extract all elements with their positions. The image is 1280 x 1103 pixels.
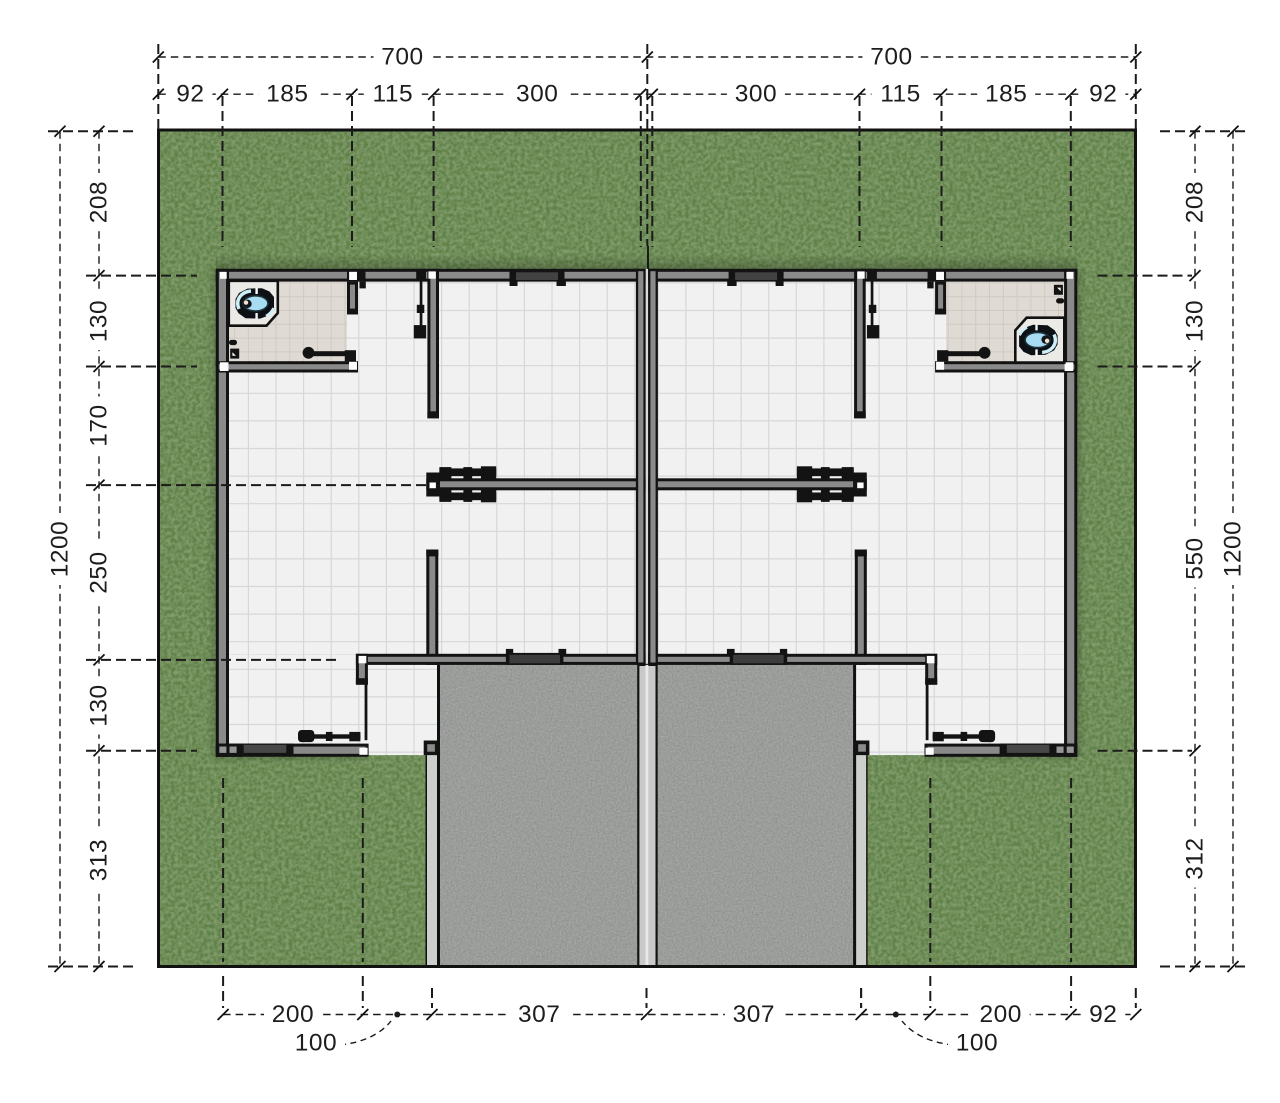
svg-text:130: 130: [86, 684, 113, 726]
svg-text:92: 92: [1089, 81, 1117, 108]
svg-text:550: 550: [1182, 537, 1209, 579]
svg-text:130: 130: [86, 300, 113, 342]
svg-text:185: 185: [985, 81, 1027, 108]
svg-text:700: 700: [381, 44, 423, 71]
svg-text:700: 700: [870, 44, 912, 71]
svg-text:200: 200: [980, 1001, 1022, 1028]
svg-text:208: 208: [1182, 181, 1209, 223]
svg-text:208: 208: [86, 181, 113, 223]
svg-text:300: 300: [735, 81, 777, 108]
svg-text:307: 307: [518, 1001, 560, 1028]
svg-text:300: 300: [516, 81, 558, 108]
svg-text:100: 100: [956, 1030, 998, 1057]
svg-text:307: 307: [733, 1001, 775, 1028]
svg-text:185: 185: [266, 81, 308, 108]
svg-text:92: 92: [176, 81, 204, 108]
svg-text:92: 92: [1089, 1001, 1117, 1028]
svg-text:200: 200: [272, 1001, 314, 1028]
svg-text:130: 130: [1182, 300, 1209, 342]
svg-text:170: 170: [86, 404, 113, 446]
svg-text:1200: 1200: [47, 521, 74, 578]
svg-text:100: 100: [295, 1030, 337, 1057]
svg-text:312: 312: [1182, 837, 1209, 879]
svg-text:115: 115: [880, 81, 921, 108]
svg-text:313: 313: [86, 839, 113, 881]
svg-text:115: 115: [373, 81, 414, 108]
svg-text:1200: 1200: [1220, 521, 1247, 578]
svg-text:250: 250: [86, 551, 113, 593]
